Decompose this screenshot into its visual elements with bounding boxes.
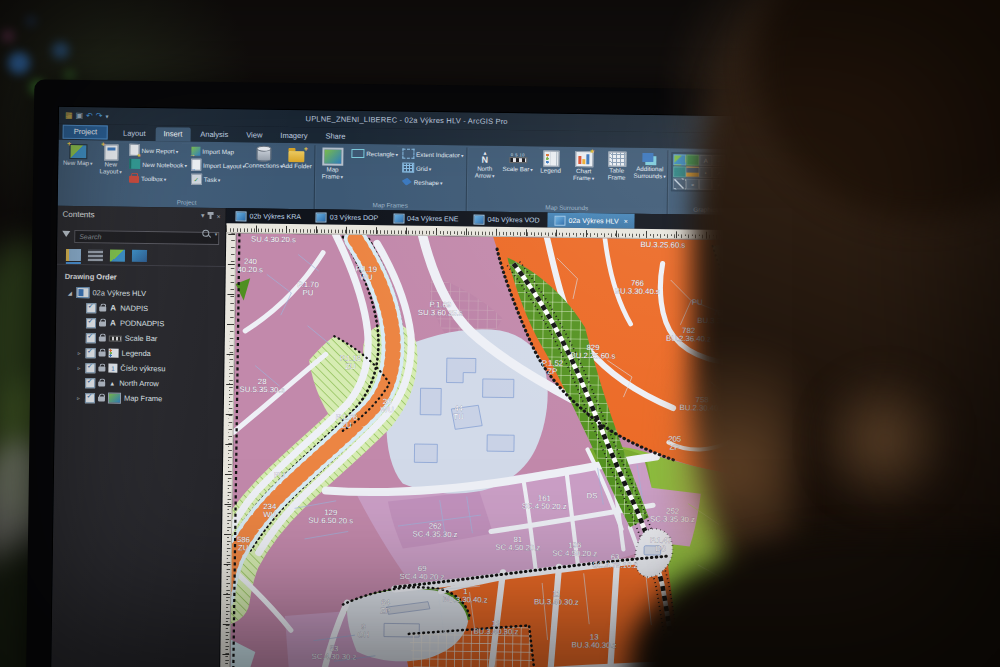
task-icon — [191, 173, 202, 184]
ribbon-tab-layout[interactable]: Layout — [115, 127, 154, 142]
bokeh-light — [52, 42, 69, 59]
layer-name: Legenda — [122, 349, 151, 358]
button-label: Map Frame▾ — [316, 166, 349, 180]
dropdown-arrow-icon: ▾ — [185, 162, 188, 168]
map-label: 234WU — [263, 502, 277, 519]
list-by-selection-icon[interactable] — [110, 250, 125, 262]
dropdown-arrow-icon: ▾ — [90, 160, 93, 166]
grid-icon — [402, 163, 414, 173]
checkbox-checked[interactable] — [85, 393, 95, 403]
pin-icon[interactable] — [209, 213, 211, 219]
map-frame-icon — [322, 147, 343, 165]
layer-tree: ◢02a Výkres HLVNADPISPODNADPISScale Bar▹… — [55, 285, 225, 407]
button-label: Grid▾ — [416, 164, 432, 171]
drawing-order-label: Drawing Order — [57, 265, 225, 287]
lock-icon — [99, 336, 106, 341]
button-import-layout[interactable]: Import Layout▾ — [189, 158, 247, 173]
big-button-map-frame[interactable]: Map Frame▾ — [316, 145, 349, 180]
layer-name: 02a Výkres HLV — [92, 288, 146, 298]
map-label: 586ZU — [237, 535, 250, 552]
button-toolbox[interactable]: Toolbox▾ — [127, 171, 189, 186]
list-by-drawing-order-icon[interactable] — [66, 249, 81, 261]
legend-icon — [109, 349, 119, 358]
expander-icon[interactable]: ▹ — [75, 365, 82, 371]
import-layout-icon — [191, 159, 201, 171]
dropdown-arrow-icon: ▾ — [396, 151, 399, 157]
contents-pane: Contents ▾ × ▾ — [51, 206, 227, 667]
dropdown-arrow-icon: ▾ — [176, 148, 179, 154]
button-label: Legend — [540, 168, 561, 175]
button-import-map[interactable]: Import Map — [189, 144, 247, 159]
scale-bar-icon — [509, 150, 527, 165]
dropdown-arrow-icon: ▾ — [429, 165, 432, 171]
big-button-add-folder[interactable]: Add Folder — [280, 145, 313, 170]
map-frame-icon — [108, 393, 121, 404]
ribbon-tab-project[interactable]: Project — [63, 125, 109, 140]
view-tab-04a-v-kres-ene[interactable]: 04a Výkres ENE — [386, 210, 466, 226]
button-label: Connections▾ — [245, 162, 283, 169]
list-by-editing-icon[interactable] — [132, 250, 147, 262]
undo-icon[interactable]: ↶ — [86, 112, 93, 120]
layout-thumb-icon — [473, 214, 484, 224]
button-label: Reshape▾ — [414, 178, 443, 185]
view-tab-label: 02b Výkres KRA — [249, 212, 300, 220]
checkbox-checked[interactable] — [86, 318, 96, 328]
layout-icon — [76, 287, 89, 298]
layout-thumb-icon — [393, 213, 404, 223]
button-label: Toolbox▾ — [141, 174, 166, 181]
map-label: DS — [587, 491, 598, 500]
save-icon[interactable]: ▣ — [75, 112, 83, 120]
new-notebook-icon — [129, 159, 140, 169]
dropdown-arrow-icon: ▾ — [461, 152, 464, 158]
lock-icon — [99, 351, 106, 356]
checkbox-checked[interactable] — [86, 348, 96, 358]
bokeh-light — [8, 52, 30, 74]
map-label: 64ZP — [380, 598, 390, 615]
big-button-table-frame[interactable]: Table Frame — [600, 149, 633, 181]
big-button-connections[interactable]: Connections▾ — [247, 144, 280, 169]
dropdown-arrow-icon: ▾ — [492, 173, 495, 179]
expander-icon[interactable]: ▹ — [75, 395, 82, 401]
button-label: Task▾ — [204, 175, 221, 182]
checkbox-checked[interactable] — [86, 333, 96, 343]
button-label: Add Folder — [281, 163, 311, 170]
bokeh-light — [26, 16, 36, 26]
search-box: ▾ — [74, 225, 219, 245]
new-map-icon — [69, 144, 87, 159]
lock-icon — [98, 396, 105, 401]
button-label: North Arrow▾ — [468, 166, 501, 180]
close-icon[interactable]: × — [216, 212, 220, 219]
bokeh-light — [2, 30, 14, 42]
button-new-report[interactable]: New Report▾ — [127, 143, 189, 158]
person-ear-highlight — [820, 360, 950, 520]
button-label: New Map▾ — [63, 160, 93, 167]
lock-icon — [99, 321, 106, 326]
dropdown-arrow-icon: ▾ — [119, 168, 122, 174]
legend-icon — [543, 151, 559, 167]
new-layout-icon — [104, 144, 118, 160]
ribbon-tab-share[interactable]: Share — [317, 129, 353, 144]
chart-frame-icon — [575, 151, 593, 167]
table-frame-icon — [608, 151, 626, 166]
big-button-chart-frame[interactable]: Chart Frame▾ — [567, 149, 600, 182]
button-new-notebook[interactable]: New Notebook▾ — [127, 157, 189, 172]
dropdown-arrow-icon: ▾ — [218, 177, 221, 183]
view-tab-label: 04a Výkres ENE — [407, 215, 458, 223]
button-label: Extent Indicator▾ — [416, 150, 463, 158]
connections-icon — [256, 147, 271, 162]
search-input[interactable] — [74, 230, 219, 245]
collapse-arrow-icon[interactable]: ▾ — [201, 212, 205, 220]
button-label: Table Frame — [600, 167, 633, 181]
layout-thumb-icon — [555, 215, 566, 225]
button-label: Chart Frame▾ — [567, 168, 600, 182]
text-icon — [109, 304, 117, 313]
list-by-source-icon[interactable] — [88, 249, 103, 261]
rectangle-icon — [351, 148, 364, 157]
ribbon-tab-analysis[interactable]: Analysis — [192, 128, 236, 143]
button-label: Scale Bar▾ — [503, 166, 533, 173]
checkbox-checked[interactable] — [85, 363, 95, 373]
button-reshape[interactable]: Reshape▾ — [400, 175, 465, 190]
customize-dropdown-icon[interactable]: ▾ — [105, 112, 108, 120]
dropdown-arrow-icon: ▾ — [440, 180, 443, 186]
ribbon-tab-imagery[interactable]: Imagery — [272, 129, 315, 144]
view-tab-label: 03 Výkres DOP — [330, 214, 378, 222]
north-arrow-icon — [108, 380, 116, 386]
layer-name: Map Frame — [124, 394, 162, 404]
button-label: New Layout▾ — [94, 161, 127, 175]
layer-name: PODNADPIS — [120, 319, 164, 329]
view-tab-02a-v-kres-hlv[interactable]: 02a Výkres HLV× — [548, 213, 635, 229]
button-task[interactable]: Task▾ — [189, 172, 247, 187]
layer-name: Číslo výkresu — [120, 364, 165, 374]
ribbon-group-map-frames: Map Frame▾Rectangle▾Extent Indicator▾Gri… — [314, 145, 467, 211]
ribbon-tab-view[interactable]: View — [238, 128, 270, 142]
new-report-icon — [129, 144, 139, 156]
scalebar-icon — [109, 335, 122, 341]
button-label: Import Map — [202, 147, 234, 154]
button-label: New Report▾ — [141, 146, 178, 154]
sheet-number-icon — [108, 364, 117, 373]
expander-icon[interactable]: ▹ — [76, 350, 83, 356]
big-button-new-map[interactable]: New Map▾ — [61, 142, 94, 167]
magnifier-icon — [202, 230, 209, 237]
big-button-legend[interactable]: Legend — [534, 148, 567, 174]
photo-of-monitor: ▦ ▣ ↶ ↷ ▾ UPLNE_ZNENI_LIBEREC - 02a Výkr… — [0, 0, 1000, 667]
layer-name: Scale Bar — [125, 334, 158, 343]
expander-icon[interactable]: ◢ — [66, 289, 73, 295]
view-tab-04b-v-kres-vod[interactable]: 04b Výkres VOD — [466, 211, 546, 227]
dropdown-arrow-icon: ▾ — [164, 176, 167, 182]
map-label: SU.4.30.20.s — [251, 235, 296, 245]
button-label: Rectangle▾ — [366, 150, 398, 157]
extent-indicator-icon — [402, 149, 414, 159]
big-button-new-layout[interactable]: New Layout▾ — [94, 142, 127, 175]
button-grid[interactable]: Grid▾ — [400, 161, 465, 176]
layer-map-frame[interactable]: ▹Map Frame — [55, 390, 223, 407]
ribbon-group-project: New Map▾New Layout▾New Report▾New Notebo… — [60, 142, 316, 210]
view-tab-03-v-kres-dop[interactable]: 03 Výkres DOP — [309, 209, 385, 225]
button-label: New Notebook▾ — [142, 160, 187, 168]
north-arrow-icon — [477, 150, 493, 165]
ribbon-tab-insert[interactable]: Insert — [155, 127, 190, 141]
button-label: Import Layout▾ — [203, 161, 245, 169]
filter-icon[interactable] — [62, 231, 70, 237]
close-tab-icon[interactable]: × — [624, 218, 628, 225]
view-tab-02b-v-kres-kra[interactable]: 02b Výkres KRA — [228, 208, 308, 224]
add-folder-icon — [289, 151, 305, 162]
dropdown-arrow-icon: ▾ — [592, 175, 595, 181]
search-row: ▾ — [57, 222, 225, 248]
map-label: PU — [274, 471, 285, 480]
dropdown-arrow-icon: ▾ — [530, 166, 533, 172]
lock-icon — [98, 366, 105, 371]
reshape-icon — [402, 178, 412, 186]
contents-view-tabs — [57, 246, 225, 267]
view-tab-label: 04b Výkres VOD — [487, 216, 539, 224]
search-dropdown-icon[interactable]: ▾ — [215, 231, 218, 237]
big-button-north-arrow[interactable]: North Arrow▾ — [468, 148, 501, 180]
dropdown-arrow-icon: ▾ — [341, 174, 344, 180]
lock-icon — [99, 306, 106, 311]
toolbox-icon — [129, 176, 139, 183]
text-icon — [109, 319, 117, 328]
app-menu-icon[interactable]: ▦ — [65, 111, 73, 119]
import-map-icon — [191, 146, 200, 155]
checkbox-checked[interactable] — [86, 303, 96, 313]
layer-name: North Arrow — [119, 379, 159, 389]
quick-access-toolbar: ▦ ▣ ↶ ↷ ▾ — [65, 111, 109, 120]
redo-icon[interactable]: ↷ — [96, 112, 103, 120]
layout-thumb-icon — [316, 212, 327, 222]
contents-title: Contents — [62, 209, 94, 218]
button-extent-indicator[interactable]: Extent Indicator▾ — [400, 147, 465, 162]
map-label: 44TU — [453, 404, 464, 421]
layout-thumb-icon — [235, 211, 246, 221]
lock-icon — [98, 381, 105, 386]
big-button-scale-bar[interactable]: Scale Bar▾ — [501, 148, 534, 173]
layer-name: NADPIS — [120, 304, 148, 313]
checkbox-checked[interactable] — [85, 378, 95, 388]
view-tab-label: 02a Výkres HLV — [569, 217, 619, 225]
button-rectangle[interactable]: Rectangle▾ — [349, 146, 400, 161]
